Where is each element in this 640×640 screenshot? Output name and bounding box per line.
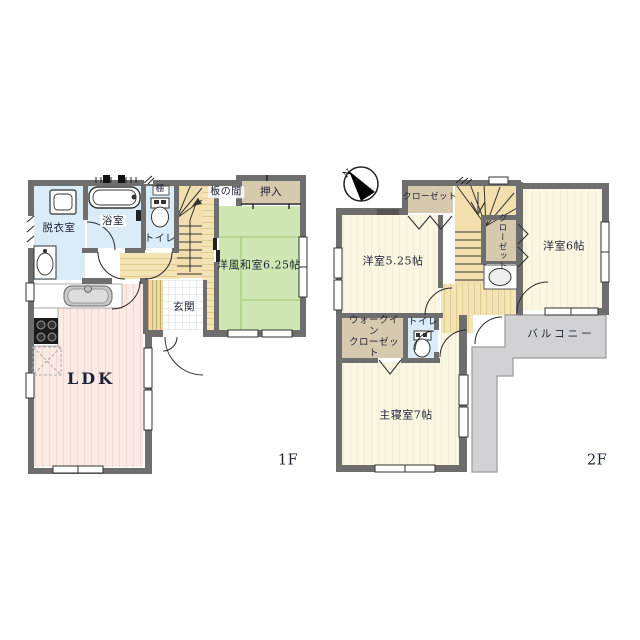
- floor-plan-drawing: [0, 0, 640, 640]
- label-shelf: 棚: [155, 185, 164, 195]
- stove-burner: [37, 321, 45, 329]
- washbasin-faucet: [43, 249, 47, 253]
- washbasin-bowl-2f: [489, 269, 511, 286]
- label-balcony: バルコニー: [527, 328, 594, 340]
- floor-plan-canvas: 脱衣室 浴室 棚 トイレ 板の間 押入 洋風和室6.25帖 玄関 LDK 1F …: [0, 0, 640, 640]
- stove-burner: [48, 321, 56, 329]
- label-oshiire: 押入: [260, 186, 282, 198]
- label-toilet-2f: トイレ: [408, 318, 438, 329]
- toilet-button: [154, 200, 159, 204]
- stove-burner: [37, 333, 45, 341]
- label-closet-top: クローゼット: [403, 193, 457, 203]
- shower-icon: [136, 210, 141, 221]
- toilet-bowl-1f: [152, 207, 169, 227]
- entrance-door-arc-main: [165, 337, 203, 375]
- sliding-door-leaf: [213, 238, 217, 250]
- label-room525: 洋室5.25帖: [363, 256, 424, 269]
- kitchen-faucet-icon: [85, 286, 92, 293]
- label-floor-1f: 1F: [278, 453, 298, 470]
- label-dressing-room: 脱衣室: [43, 222, 76, 234]
- toilet-button: [416, 333, 420, 337]
- hallway-2f-lower: [441, 315, 473, 333]
- label-ldk: LDK: [67, 370, 115, 388]
- bathtub-drain-icon: [132, 195, 137, 200]
- label-master-bedroom: 主寝室7帖: [379, 410, 433, 423]
- label-itanoma: 板の間: [208, 186, 244, 198]
- bath-faucet-icon: [118, 175, 125, 183]
- label-closet-mid: クローゼット: [496, 214, 506, 271]
- genkan-step: [148, 280, 163, 333]
- window-sill-525: [377, 209, 399, 215]
- label-wic: ウォークインクローゼット: [345, 316, 403, 360]
- label-genkan: 玄関: [173, 301, 195, 313]
- bath-faucet-icon: [103, 175, 110, 183]
- label-washitsu: 洋風和室6.25帖: [217, 260, 301, 273]
- stove-burner: [48, 333, 56, 341]
- toilet-button: [161, 200, 166, 204]
- label-toilet-1f: トイレ: [144, 233, 176, 245]
- label-room6: 洋室6帖: [543, 241, 585, 254]
- label-wic-line1: ウォークイン: [349, 315, 399, 337]
- hallway-wood-1f: [120, 253, 179, 279]
- label-wic-line2: クローゼット: [349, 337, 399, 359]
- label-floor-2f: 2F: [587, 453, 607, 470]
- entrance-opening: [163, 330, 203, 337]
- label-bath: 浴室: [100, 215, 126, 227]
